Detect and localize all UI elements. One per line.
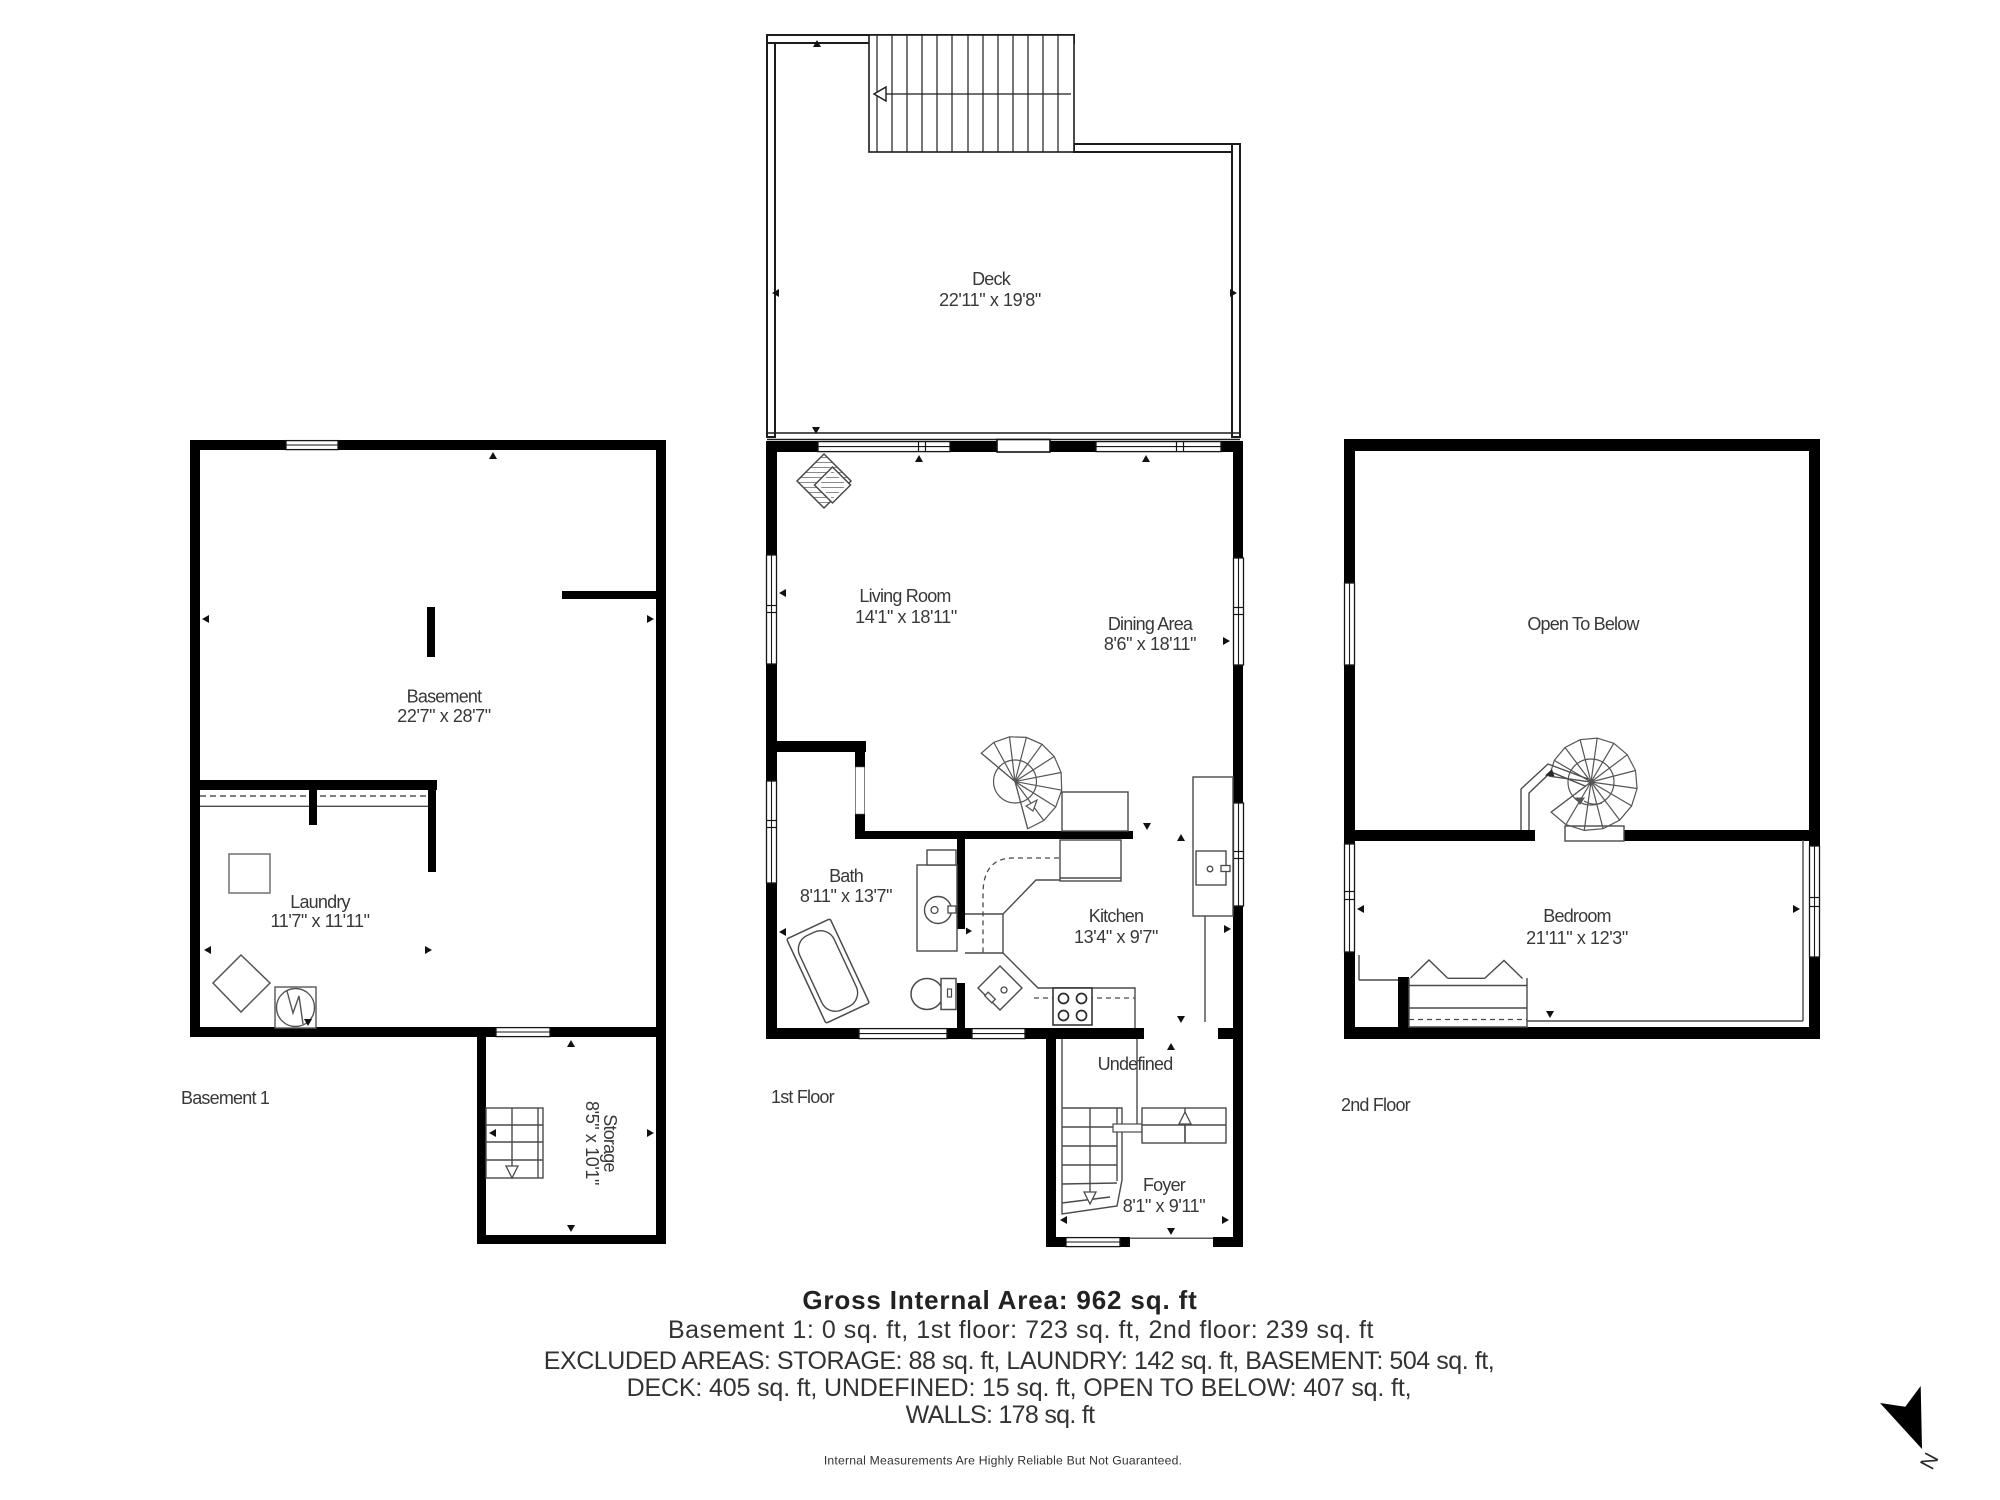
svg-text:8'5" x 10'1": 8'5" x 10'1": [582, 1101, 602, 1185]
svg-text:Foyer: Foyer: [1143, 1175, 1186, 1195]
svg-text:Bedroom: Bedroom: [1543, 906, 1610, 926]
svg-text:Basement 1: Basement 1: [181, 1088, 270, 1108]
svg-text:Dining Area: Dining Area: [1108, 614, 1194, 634]
svg-text:Kitchen: Kitchen: [1089, 906, 1143, 926]
svg-text:8'11" x 13'7": 8'11" x 13'7": [800, 886, 892, 906]
svg-text:Deck: Deck: [972, 269, 1012, 289]
svg-text:Basement 1: 0 sq. ft, 1st floo: Basement 1: 0 sq. ft, 1st floor: 723 sq.…: [668, 1316, 1374, 1344]
svg-text:DECK: 405 sq. ft, UNDEFINED: 1: DECK: 405 sq. ft, UNDEFINED: 15 sq. ft, …: [627, 1374, 1412, 1402]
svg-text:13'4" x 9'7": 13'4" x 9'7": [1074, 927, 1158, 947]
svg-text:EXCLUDED AREAS: STORAGE: 88 sq: EXCLUDED AREAS: STORAGE: 88 sq. ft, LAUN…: [544, 1347, 1494, 1375]
svg-text:22'11" x 19'8": 22'11" x 19'8": [939, 290, 1041, 310]
svg-text:2nd Floor: 2nd Floor: [1341, 1095, 1411, 1115]
svg-text:11'7" x 11'11": 11'7" x 11'11": [270, 911, 369, 931]
svg-text:8'6" x 18'11": 8'6" x 18'11": [1104, 634, 1196, 654]
svg-text:Storage: Storage: [600, 1114, 620, 1172]
svg-text:WALLS: 178 sq. ft: WALLS: 178 sq. ft: [906, 1401, 1095, 1429]
svg-text:1st Floor: 1st Floor: [771, 1087, 835, 1107]
svg-text:Basement: Basement: [407, 687, 482, 707]
svg-text:22'7" x 28'7": 22'7" x 28'7": [397, 706, 491, 726]
svg-text:14'1" x 18'11": 14'1" x 18'11": [855, 607, 957, 627]
svg-text:21'11" x 12'3": 21'11" x 12'3": [1526, 928, 1628, 948]
svg-text:Internal Measurements Are High: Internal Measurements Are Highly Reliabl…: [824, 1454, 1182, 1468]
svg-text:Laundry: Laundry: [290, 892, 350, 912]
svg-text:Gross Internal Area: 962 sq. f: Gross Internal Area: 962 sq. ft: [802, 1285, 1197, 1315]
svg-text:8'1" x 9'11": 8'1" x 9'11": [1123, 1196, 1206, 1216]
svg-text:Undefined: Undefined: [1098, 1054, 1173, 1074]
svg-text:Living Room: Living Room: [859, 586, 950, 606]
svg-text:Open To Below: Open To Below: [1527, 614, 1640, 634]
svg-text:Bath: Bath: [829, 866, 863, 886]
